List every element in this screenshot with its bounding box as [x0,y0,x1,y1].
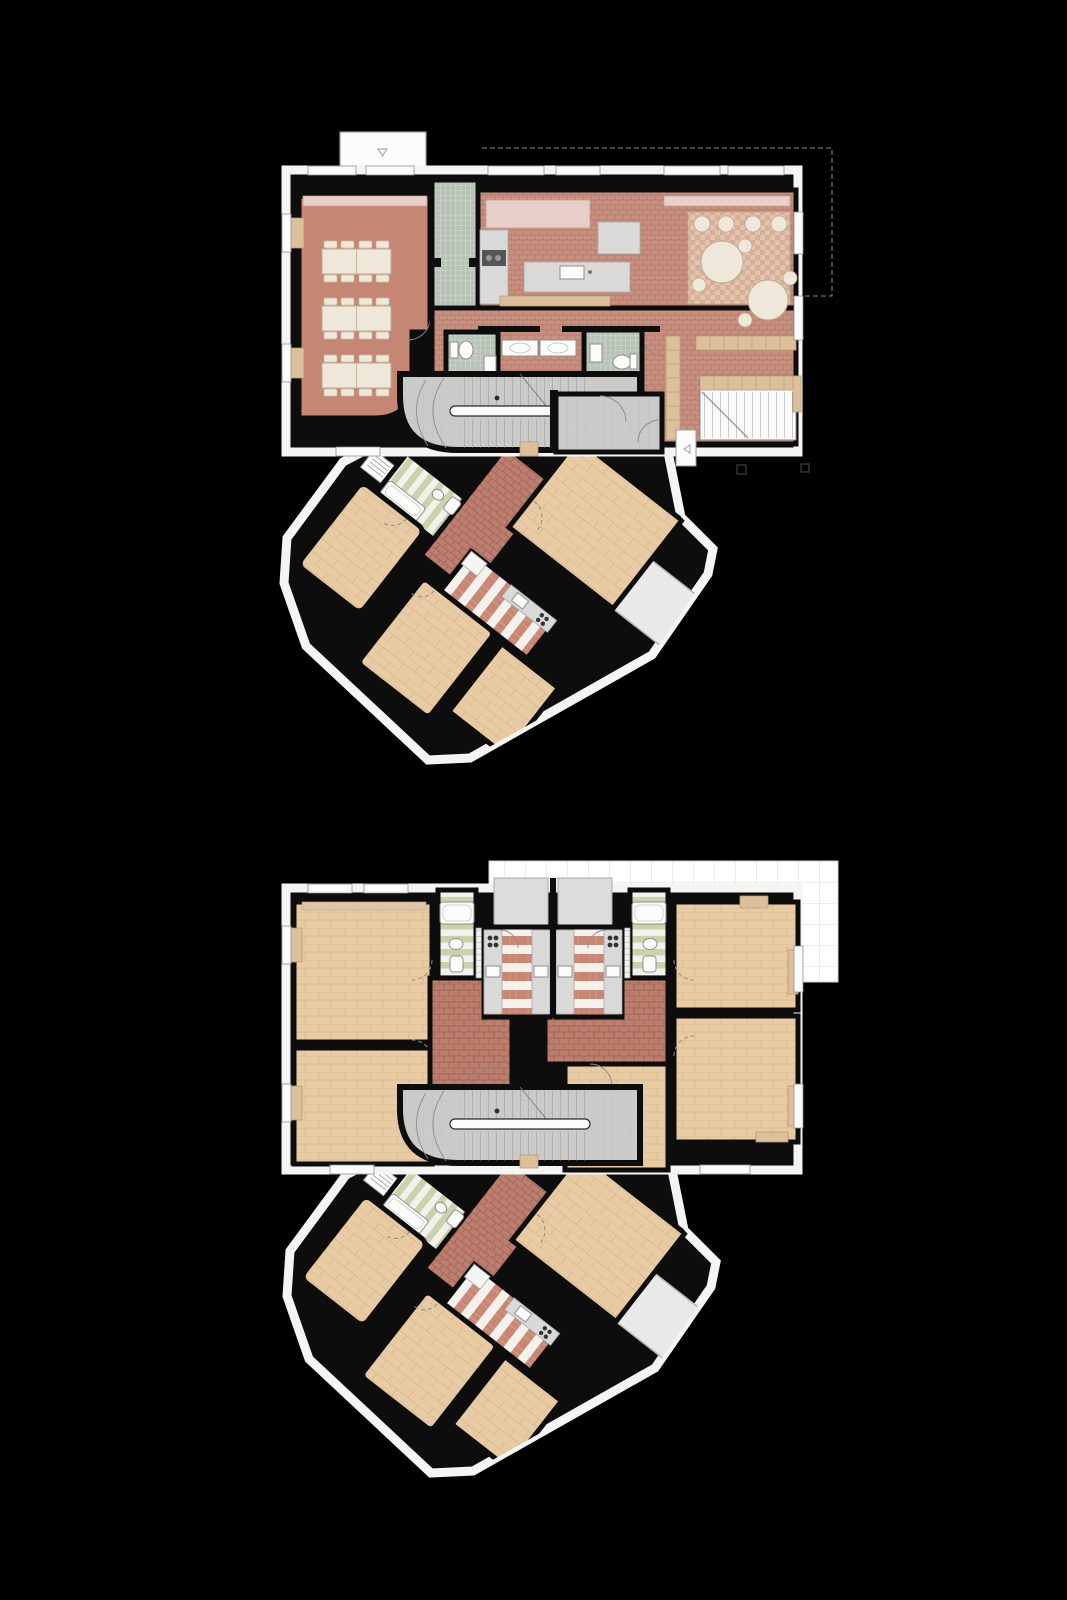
sink [590,344,602,362]
window [282,1084,291,1122]
twin-sink [502,340,538,356]
window-sill [664,196,790,206]
window-sill [303,196,427,206]
room-left-1 [294,902,432,1042]
window [364,884,408,893]
wing-threshold [520,442,538,456]
window-seat [793,376,801,412]
round-table [701,241,743,283]
toilet [613,355,631,369]
section-marker [737,465,746,474]
banquette [486,200,590,228]
twin-sink [540,340,576,356]
plan-lower [267,861,838,1517]
party-wall [550,878,556,1018]
window [794,212,803,254]
bench-column [666,336,680,440]
window [282,926,291,964]
window [282,344,291,382]
oven [482,250,506,266]
window-sill [302,902,426,910]
toilet [459,341,473,359]
window [488,166,544,175]
room-right-1 [674,902,798,1010]
window [664,166,720,175]
window [308,166,356,175]
door-threshold [740,896,768,908]
island-sink [560,266,584,279]
island-bench [500,296,610,306]
window [728,166,784,175]
canvas [0,0,1067,1600]
window-seat [756,1132,788,1142]
plan-upper [264,132,832,804]
window [336,447,380,456]
kitchen-counter [480,230,508,304]
window [700,1165,750,1174]
window [794,1084,803,1128]
window [308,884,352,893]
window [794,946,803,992]
round-table [748,280,788,320]
floor-plans-figure [0,0,1067,1600]
window [330,1165,374,1174]
entry-hall [432,180,478,308]
window [366,166,414,175]
window [282,214,291,252]
window [556,166,600,175]
kitchen-cabinet [598,222,640,254]
room-right-2 [674,1016,798,1142]
living-stair [700,376,796,440]
window [794,296,803,340]
wing-threshold [520,1155,538,1168]
section-marker [801,464,809,472]
stair-foyer [556,394,662,452]
bench-row [696,336,796,350]
